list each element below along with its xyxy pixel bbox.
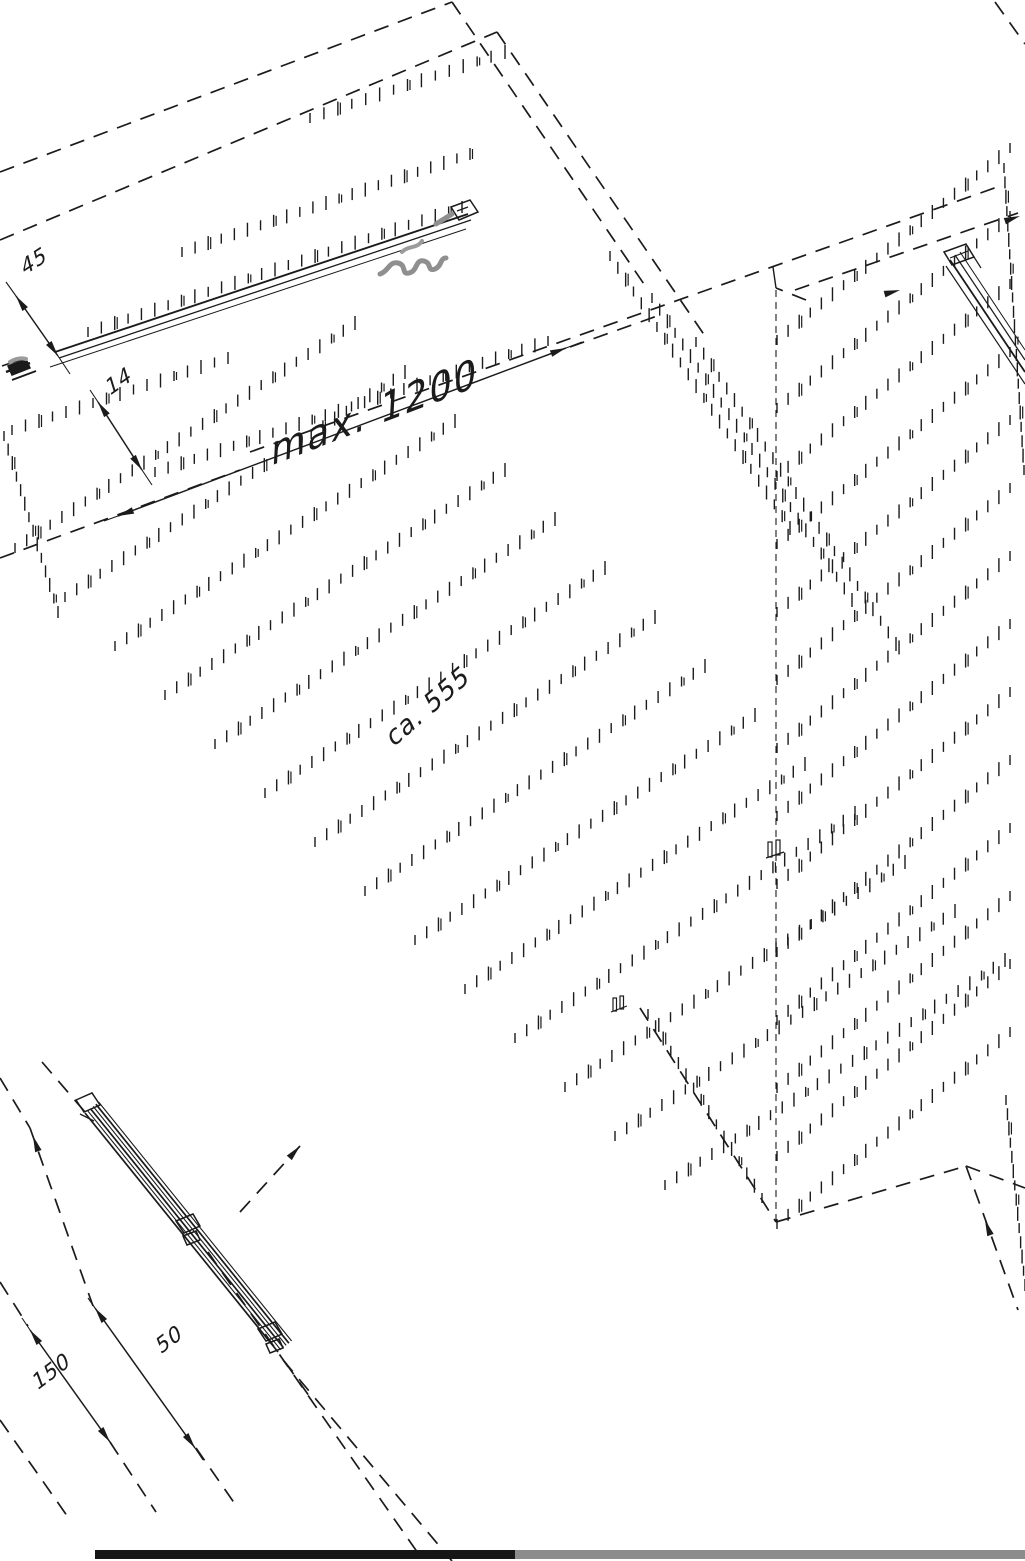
rail-and-bracket-lines: [2, 200, 1025, 1353]
hidden-edge-lines: [0, 2, 1025, 1561]
dim-mid-height-label: ca. 555: [382, 658, 474, 754]
dimension-arrowheads: [16, 216, 1020, 1448]
technical-drawing-page: 45 14 max. 1200 ca. 555 150 50: [0, 0, 1025, 1561]
dim-side-offset-label: 14: [104, 361, 135, 402]
fixing-highlight-scribble: [10, 214, 452, 362]
dim-max-spacing-label: max. 1200: [270, 349, 479, 476]
isometric-mounting-diagram: 45 14 max. 1200 ca. 555 150 50: [0, 0, 1025, 1561]
footer-bar-dark: [95, 1550, 515, 1559]
dim-top-offset-label: 45: [19, 241, 50, 281]
dim-bottom-outer-label: 150: [30, 1347, 74, 1397]
footer-bar-gray: [515, 1550, 1025, 1559]
dim-bottom-inner-label: 50: [154, 1319, 186, 1360]
